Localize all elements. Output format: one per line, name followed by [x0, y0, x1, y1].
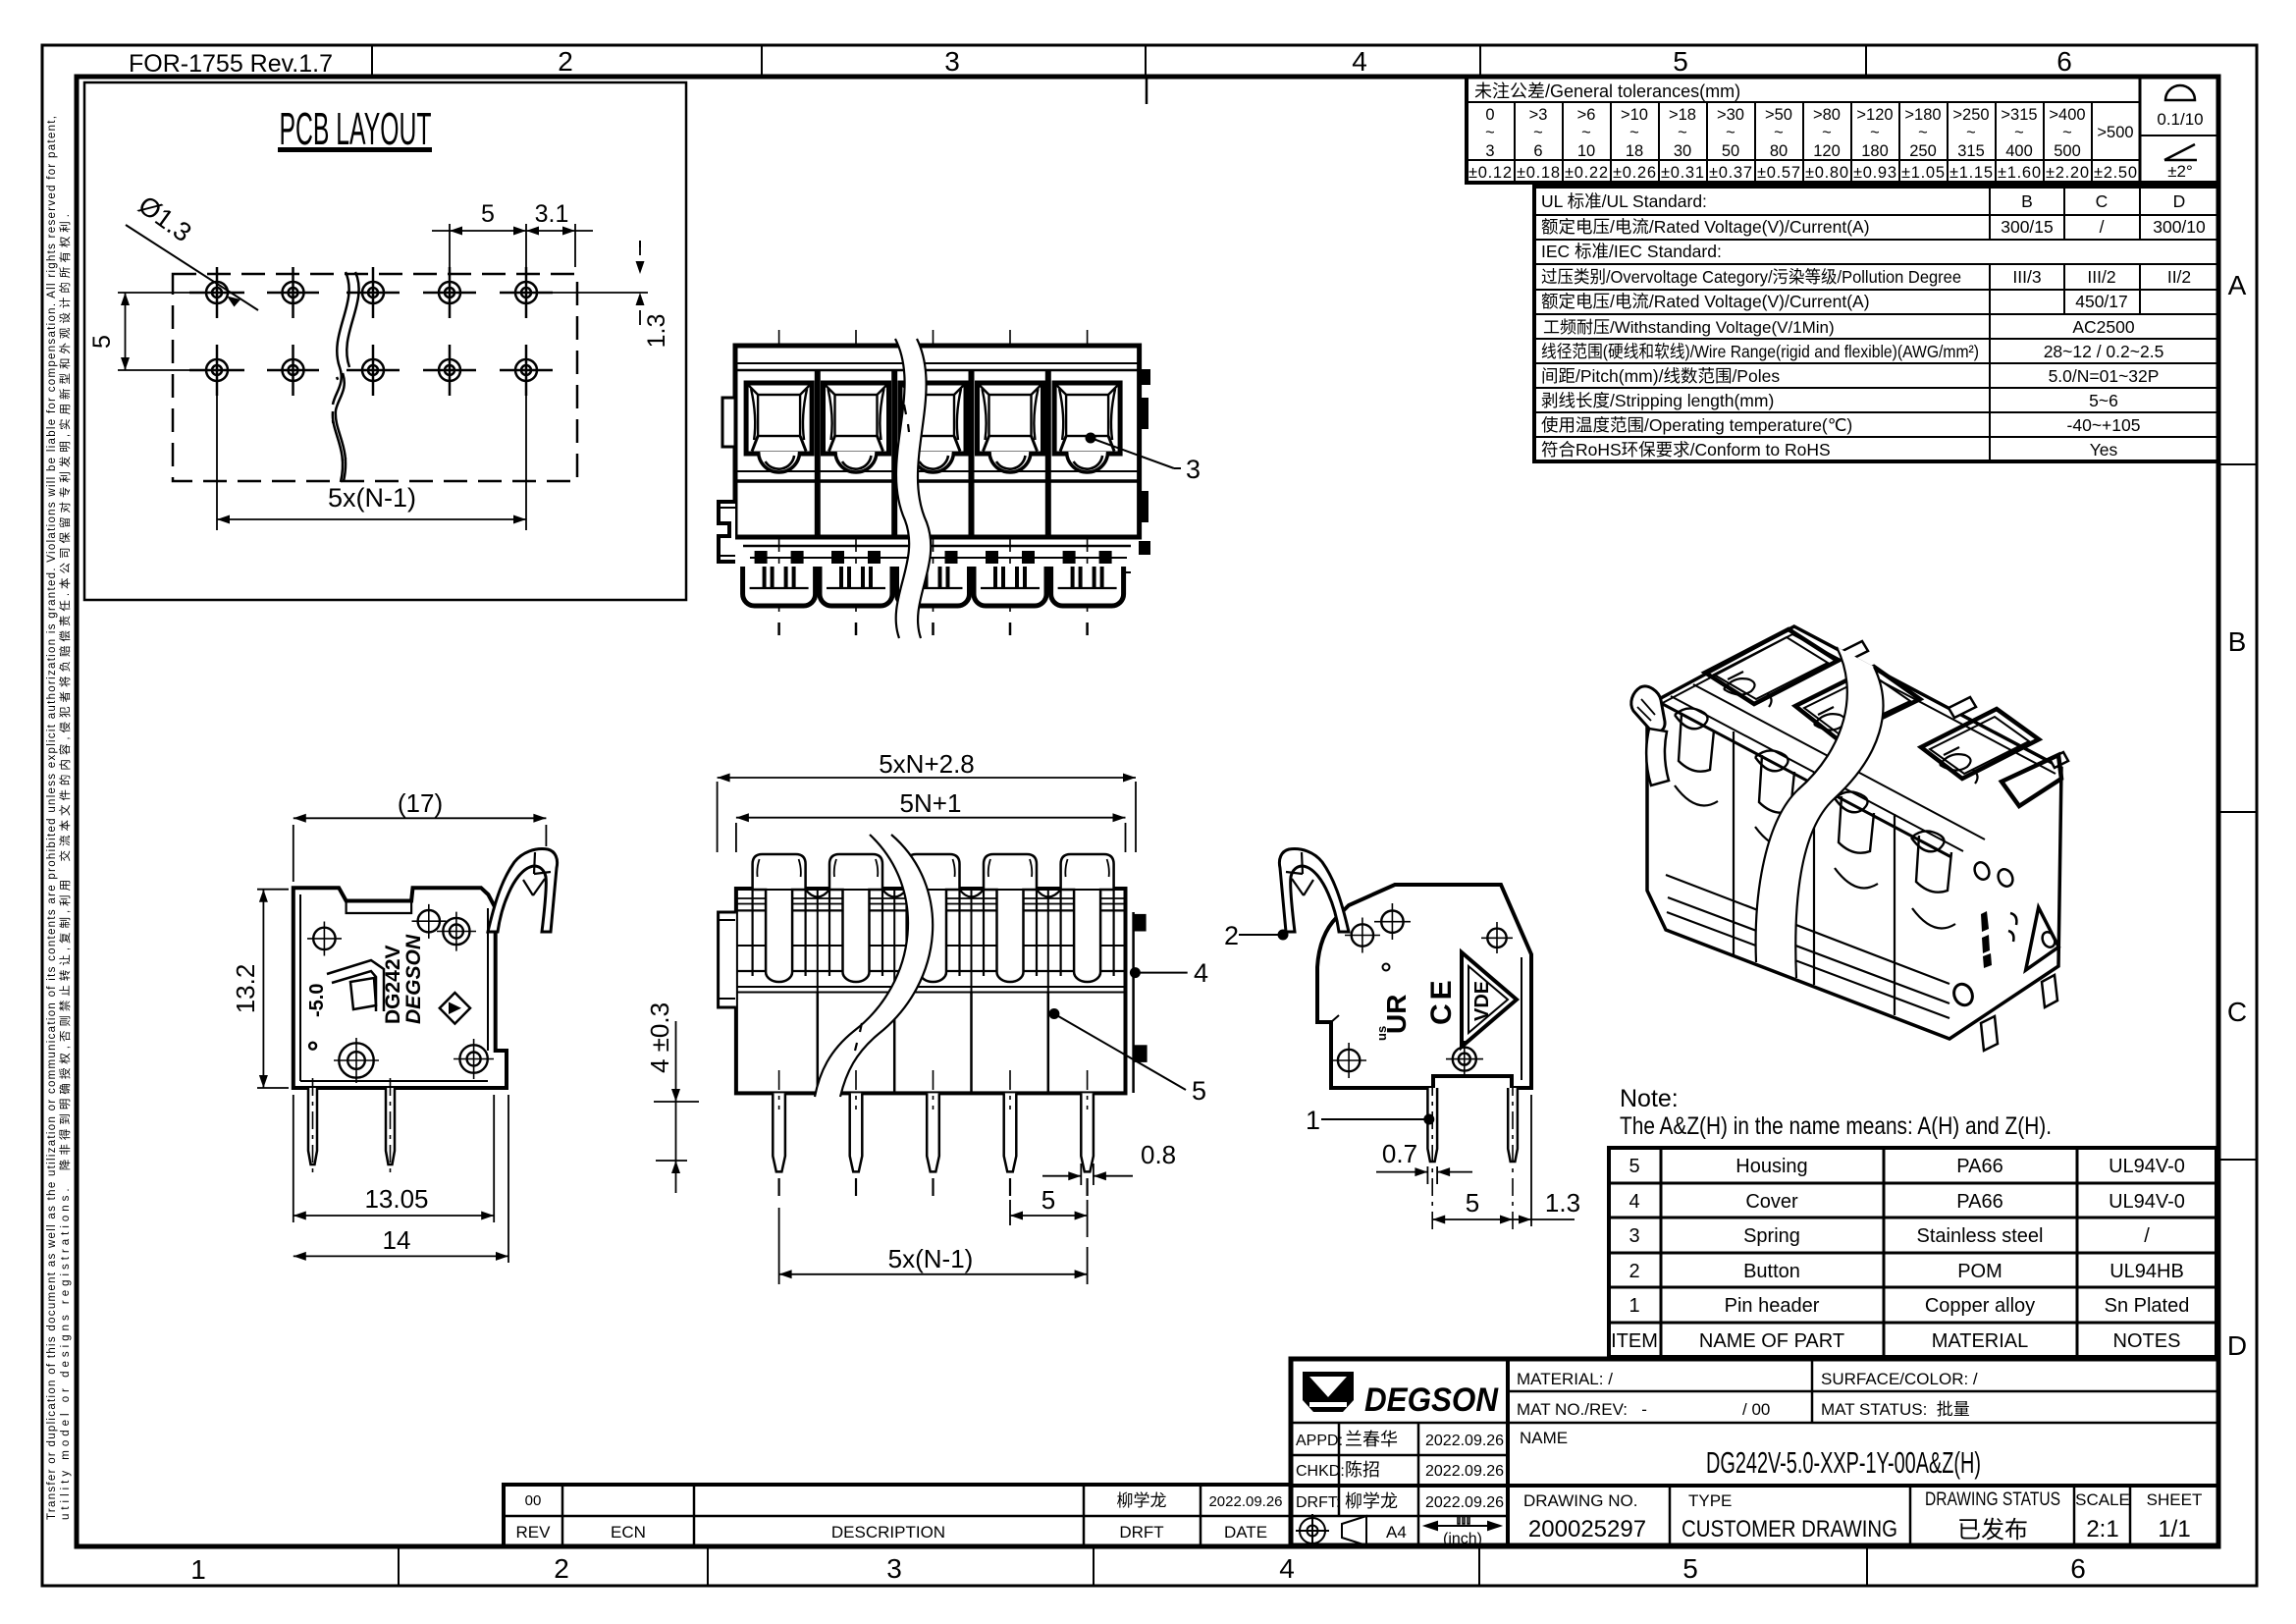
svg-text:B: B	[2021, 191, 2033, 211]
svg-text:柳学龙: 柳学龙	[1117, 1491, 1167, 1510]
svg-text:>3: >3	[1529, 106, 1548, 124]
svg-text:180: 180	[1861, 142, 1889, 160]
svg-text:III/2: III/2	[2087, 267, 2115, 287]
svg-text:PCB LAYOUT: PCB LAYOUT	[280, 103, 432, 154]
svg-text:DESCRIPTION: DESCRIPTION	[831, 1523, 945, 1542]
svg-text:5: 5	[1673, 46, 1688, 77]
svg-text:工频耐压/Withstanding Voltage(V/1M: 工频耐压/Withstanding Voltage(V/1Min)	[1543, 318, 1835, 337]
svg-text:±2.50: ±2.50	[2094, 164, 2137, 182]
svg-text:13.2: 13.2	[231, 964, 260, 1014]
svg-text:±1.60: ±1.60	[1998, 164, 2041, 182]
svg-text:5N+1: 5N+1	[900, 788, 962, 818]
svg-text:ITEM: ITEM	[1611, 1330, 1658, 1352]
svg-text:80: 80	[1770, 142, 1788, 160]
svg-text:Housing: Housing	[1735, 1156, 1807, 1177]
svg-text:>30: >30	[1717, 106, 1744, 124]
svg-text:~: ~	[1774, 124, 1784, 141]
svg-text:315: 315	[1957, 142, 1985, 160]
svg-text:0.7: 0.7	[1382, 1139, 1417, 1168]
svg-text:B: B	[2228, 626, 2247, 657]
svg-text:200025297: 200025297	[1528, 1516, 1646, 1543]
svg-text:4: 4	[1194, 958, 1208, 988]
svg-text:3: 3	[886, 1553, 902, 1584]
svg-text:额定电压/电流/Rated Voltage(V)/Curre: 额定电压/电流/Rated Voltage(V)/Current(A)	[1541, 292, 1870, 311]
svg-text:DRAWING STATUS: DRAWING STATUS	[1925, 1489, 2060, 1510]
svg-text:Note:: Note:	[1620, 1085, 1679, 1112]
svg-text:DATE: DATE	[1224, 1523, 1267, 1542]
svg-text:AC2500: AC2500	[2072, 317, 2135, 337]
svg-text:300/10: 300/10	[2153, 217, 2206, 237]
svg-text:间距/Pitch(mm)/线数范围/Poles: 间距/Pitch(mm)/线数范围/Poles	[1541, 366, 1780, 386]
svg-text:3: 3	[1485, 142, 1494, 160]
svg-text:±0.31: ±0.31	[1661, 164, 1704, 182]
svg-text:D: D	[2227, 1330, 2247, 1361]
svg-text:13.05: 13.05	[364, 1184, 428, 1214]
svg-text:MATERIAL: MATERIAL	[1932, 1330, 2029, 1352]
svg-text:A: A	[2228, 270, 2247, 300]
svg-text:6: 6	[1533, 142, 1542, 160]
svg-text:TYPE: TYPE	[1688, 1491, 1732, 1510]
svg-text:SHEET: SHEET	[2147, 1490, 2203, 1509]
svg-text:2: 2	[1629, 1261, 1639, 1282]
svg-text:~: ~	[1966, 124, 1976, 141]
svg-text:~: ~	[1581, 124, 1591, 141]
svg-text:IEC 标准/IEC Standard:: IEC 标准/IEC Standard:	[1541, 242, 1722, 261]
svg-text:>18: >18	[1669, 106, 1696, 124]
svg-text:过压类别/Overvoltage Category/污染等级: 过压类别/Overvoltage Category/污染等级/Pollution…	[1541, 267, 1961, 287]
svg-text:~: ~	[1533, 124, 1543, 141]
svg-text:14: 14	[383, 1225, 411, 1255]
svg-text:us: us	[1374, 1026, 1389, 1041]
svg-text:50: 50	[1722, 142, 1739, 160]
svg-text:UL 标准/UL Standard:: UL 标准/UL Standard:	[1541, 191, 1707, 211]
svg-text:CUSTOMER DRAWING: CUSTOMER DRAWING	[1682, 1516, 1897, 1543]
svg-text:5: 5	[1041, 1185, 1055, 1215]
svg-text:~: ~	[1678, 124, 1687, 141]
svg-text:6: 6	[2056, 46, 2072, 77]
svg-text:~: ~	[1870, 124, 1880, 141]
svg-text:未注公差/General tolerances(mm): 未注公差/General tolerances(mm)	[1474, 81, 1740, 101]
svg-text:±0.93: ±0.93	[1853, 164, 1896, 182]
svg-text:/ 00: / 00	[1742, 1400, 1770, 1419]
svg-text:已发布: 已发布	[1957, 1517, 2028, 1543]
svg-text:>400: >400	[2049, 106, 2085, 124]
svg-text:10: 10	[1577, 142, 1595, 160]
svg-text:5: 5	[1682, 1553, 1698, 1584]
svg-text:0.8: 0.8	[1141, 1140, 1176, 1169]
svg-text:500: 500	[2054, 142, 2081, 160]
svg-text:±0.57: ±0.57	[1757, 164, 1800, 182]
svg-text:±0.22: ±0.22	[1565, 164, 1608, 182]
svg-text:±1.05: ±1.05	[1901, 164, 1945, 182]
svg-text:REV: REV	[516, 1523, 552, 1542]
svg-text:剥线长度/Stripping length(mm): 剥线长度/Stripping length(mm)	[1541, 391, 1774, 410]
svg-text:兰春华: 兰春华	[1345, 1430, 1398, 1449]
svg-text:5x(N-1): 5x(N-1)	[328, 483, 416, 513]
svg-text:DRFT: DRFT	[1119, 1523, 1163, 1542]
svg-text:Stainless steel: Stainless steel	[1917, 1225, 2044, 1247]
svg-text:1: 1	[1629, 1295, 1639, 1317]
svg-text:C: C	[2096, 191, 2109, 211]
svg-text:APPD:: APPD:	[1296, 1433, 1343, 1449]
svg-text:5: 5	[1466, 1188, 1479, 1218]
svg-text:UL94HB: UL94HB	[2109, 1261, 2184, 1282]
svg-text:1.3: 1.3	[643, 314, 670, 349]
svg-text:1/1: 1/1	[2158, 1516, 2190, 1543]
svg-text:400: 400	[2005, 142, 2033, 160]
svg-text:1.3: 1.3	[1545, 1188, 1580, 1218]
svg-text:250: 250	[1909, 142, 1937, 160]
svg-text:5.0/N=01~32P: 5.0/N=01~32P	[2049, 366, 2160, 386]
svg-text:~: ~	[1918, 124, 1928, 141]
svg-text:1: 1	[1306, 1106, 1320, 1135]
svg-text:NAME: NAME	[1520, 1429, 1568, 1447]
svg-text:28~12 / 0.2~2.5: 28~12 / 0.2~2.5	[2044, 342, 2164, 361]
svg-text:4 ±0.3: 4 ±0.3	[645, 1002, 674, 1073]
svg-text:5: 5	[1629, 1156, 1639, 1177]
svg-text:DEGSON: DEGSON	[1364, 1381, 1499, 1419]
svg-text:4: 4	[1279, 1553, 1295, 1584]
svg-text:符合RoHS环保要求/Conform to RoHS: 符合RoHS环保要求/Conform to RoHS	[1541, 440, 1831, 460]
svg-text:NAME OF PART: NAME OF PART	[1699, 1330, 1844, 1352]
svg-text:~: ~	[1629, 124, 1639, 141]
svg-text:~: ~	[2014, 124, 2024, 141]
svg-text:-40~+105: -40~+105	[2067, 415, 2141, 435]
svg-text:Spring: Spring	[1743, 1225, 1800, 1247]
svg-text:30: 30	[1674, 142, 1691, 160]
svg-text:-5.0: -5.0	[306, 984, 328, 1017]
svg-text:3: 3	[944, 46, 960, 77]
svg-text:DG242V-5.0-XXP-1Y-00A&Z(H): DG242V-5.0-XXP-1Y-00A&Z(H)	[1706, 1445, 1981, 1480]
svg-text:5xN+2.8: 5xN+2.8	[879, 749, 975, 779]
svg-text:DG242V: DG242V	[382, 945, 404, 1024]
svg-text:(17): (17)	[398, 788, 443, 818]
svg-text:MATERIAL: /: MATERIAL: /	[1517, 1370, 1613, 1388]
svg-text:±1.15: ±1.15	[1949, 164, 1993, 182]
svg-text:NOTES: NOTES	[2113, 1330, 2181, 1352]
svg-text:5: 5	[481, 200, 495, 228]
svg-text:5x(N-1): 5x(N-1)	[888, 1244, 974, 1273]
svg-text:>180: >180	[1904, 106, 1941, 124]
svg-text:MAT NO./REV: -: MAT NO./REV: -	[1517, 1400, 1647, 1419]
svg-text:CHKD:: CHKD:	[1296, 1463, 1345, 1480]
svg-text:UL94V-0: UL94V-0	[2109, 1156, 2185, 1177]
svg-text:Pin header: Pin header	[1725, 1295, 1820, 1317]
svg-text:UL94V-0: UL94V-0	[2109, 1191, 2185, 1213]
svg-text:~: ~	[1726, 124, 1735, 141]
svg-text:MAT STATUS: 批量: MAT STATUS: 批量	[1821, 1400, 1970, 1419]
svg-text:额定电压/电流/Rated Voltage(V)/Curre: 额定电压/电流/Rated Voltage(V)/Current(A)	[1541, 217, 1870, 237]
svg-text:使用温度范围/Operating temperature(℃: 使用温度范围/Operating temperature(℃)	[1541, 415, 1852, 435]
svg-text:5~6: 5~6	[2089, 391, 2118, 410]
svg-text:450/17: 450/17	[2075, 292, 2128, 311]
svg-text:A4: A4	[1386, 1523, 1407, 1542]
svg-text:5: 5	[88, 335, 116, 349]
svg-text:The A&Z(H) in the name means:: The A&Z(H) in the name means: A(H) and Z…	[1620, 1112, 2052, 1140]
svg-text:±0.26: ±0.26	[1613, 164, 1656, 182]
svg-text:±2.20: ±2.20	[2046, 164, 2089, 182]
svg-text:120: 120	[1813, 142, 1841, 160]
svg-text:>315: >315	[2001, 106, 2037, 124]
svg-text:/: /	[2144, 1225, 2150, 1247]
svg-text:PA66: PA66	[1956, 1156, 2002, 1177]
svg-text:>120: >120	[1856, 106, 1893, 124]
svg-text:2022.09.26: 2022.09.26	[1425, 1494, 1504, 1511]
svg-text:SURFACE/COLOR: /: SURFACE/COLOR: /	[1821, 1370, 1978, 1388]
svg-text:±2°: ±2°	[2167, 162, 2193, 181]
svg-text:C: C	[2227, 997, 2247, 1027]
svg-text:Button: Button	[1743, 1261, 1800, 1282]
svg-text:18: 18	[1626, 142, 1643, 160]
svg-text:±0.80: ±0.80	[1805, 164, 1848, 182]
svg-text:1: 1	[190, 1554, 206, 1585]
svg-text:4: 4	[1352, 46, 1367, 77]
svg-text:5: 5	[1192, 1076, 1206, 1106]
svg-text:DRFT:: DRFT:	[1296, 1494, 1340, 1511]
svg-text:POM: POM	[1957, 1261, 2002, 1282]
svg-text:6: 6	[2070, 1553, 2086, 1584]
svg-text:2: 2	[558, 46, 573, 77]
svg-text:>250: >250	[1952, 106, 1989, 124]
svg-text:4: 4	[1629, 1191, 1639, 1213]
svg-text:2:1: 2:1	[2086, 1516, 2118, 1543]
svg-text:300/15: 300/15	[2001, 217, 2054, 237]
svg-text:0: 0	[1485, 106, 1494, 124]
svg-text:线径范围(硬线和软线)/Wire Range(rigid a: 线径范围(硬线和软线)/Wire Range(rigid and flexibl…	[1541, 342, 1979, 361]
svg-text:3.1: 3.1	[535, 200, 569, 228]
svg-text:>10: >10	[1621, 106, 1648, 124]
svg-text:SCALE: SCALE	[2075, 1490, 2130, 1509]
svg-text:III/3: III/3	[2012, 267, 2041, 287]
svg-text:ECN: ECN	[611, 1523, 646, 1542]
svg-text:/: /	[2100, 217, 2105, 237]
svg-text:~: ~	[1485, 124, 1495, 141]
svg-text:陈招: 陈招	[1345, 1460, 1380, 1480]
svg-text:Yes: Yes	[2090, 440, 2118, 460]
svg-text:CE: CE	[1425, 976, 1458, 1025]
svg-text:±0.37: ±0.37	[1709, 164, 1752, 182]
svg-text:DEGSON: DEGSON	[402, 934, 425, 1024]
svg-text:D: D	[2173, 191, 2186, 211]
svg-text:2022.09.26: 2022.09.26	[1425, 1433, 1504, 1449]
svg-text:>6: >6	[1577, 106, 1596, 124]
svg-text:II/2: II/2	[2167, 267, 2191, 287]
svg-text:>50: >50	[1765, 106, 1792, 124]
svg-text:Copper alloy: Copper alloy	[1925, 1295, 2035, 1317]
svg-text:VDE: VDE	[1471, 981, 1493, 1021]
svg-text:>80: >80	[1813, 106, 1841, 124]
svg-text:2022.09.26: 2022.09.26	[1425, 1463, 1504, 1480]
svg-text:2: 2	[1224, 921, 1239, 950]
svg-text:~: ~	[2062, 124, 2072, 141]
svg-text:DRAWING NO.: DRAWING NO.	[1523, 1491, 1637, 1510]
svg-text:~: ~	[1822, 124, 1832, 141]
svg-text:2: 2	[554, 1553, 569, 1584]
svg-text:3: 3	[1629, 1225, 1639, 1247]
svg-text:(inch): (inch)	[1443, 1531, 1482, 1547]
svg-text:2022.09.26: 2022.09.26	[1208, 1493, 1282, 1510]
svg-text:Sn Plated: Sn Plated	[2105, 1295, 2190, 1317]
svg-text:>500: >500	[2097, 124, 2133, 141]
svg-text:Cover: Cover	[1745, 1191, 1798, 1213]
svg-text:±0.12: ±0.12	[1468, 164, 1512, 182]
svg-text:PA66: PA66	[1956, 1191, 2002, 1213]
svg-text:柳学龙: 柳学龙	[1345, 1491, 1398, 1511]
svg-text:3: 3	[1186, 455, 1201, 484]
svg-text:±0.18: ±0.18	[1517, 164, 1560, 182]
svg-text:FOR-1755 Rev.1.7: FOR-1755 Rev.1.7	[129, 50, 333, 78]
svg-text:0.1/10: 0.1/10	[2157, 110, 2203, 129]
svg-text:00: 00	[525, 1492, 542, 1509]
